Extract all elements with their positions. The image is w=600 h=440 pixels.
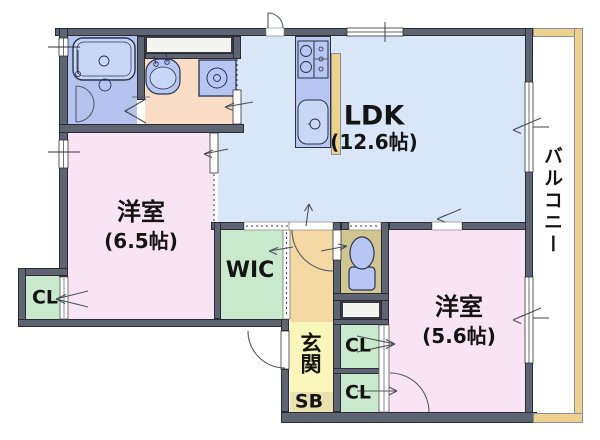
wall-wic-left	[214, 222, 221, 319]
kitchen-counter	[295, 36, 331, 148]
wall-bedroom2-top-a	[389, 222, 432, 230]
wall-washroom-bottom	[59, 124, 244, 133]
balcony-wall-right	[574, 28, 583, 423]
hall-door-opening	[289, 222, 333, 230]
storage-box-mid	[341, 301, 381, 319]
label-balcony: バルコニー	[542, 146, 561, 256]
wall-toilet-right	[381, 222, 389, 325]
wall-between-closets	[333, 368, 389, 374]
wic-sliding-door	[283, 230, 290, 319]
floor-plan: LDK (12.6帖) 洋室 (6.5帖) 洋室 (5.6帖) WIC CL C…	[0, 0, 600, 440]
wall-right	[525, 28, 533, 423]
label-bedroom-south: 洋室	[435, 295, 483, 319]
wall-storage-bottom	[145, 53, 241, 59]
label-closet-lower: CL	[345, 384, 371, 403]
wall-bottom-west	[18, 319, 289, 327]
entrance-door-leaf	[281, 331, 289, 369]
wall-top	[55, 28, 533, 36]
room-toilet	[341, 230, 381, 293]
window-interior	[432, 222, 462, 230]
kitchen-service-door-arc	[268, 13, 283, 28]
wall-below-storage	[333, 319, 389, 325]
wall-storage-right	[233, 36, 241, 59]
wall-below-toilet	[333, 293, 389, 301]
entrance-door-arc	[248, 331, 285, 368]
room-bedroom-west	[68, 133, 214, 319]
room-hallway	[290, 230, 333, 322]
wall-toilet-top	[341, 222, 349, 230]
wall-bath-partition	[137, 36, 145, 100]
label-ldk: LDK	[344, 103, 405, 130]
label-wic: WIC	[226, 260, 275, 282]
label-shoebox: SB	[295, 393, 323, 412]
wall-genkan-left-down	[281, 369, 289, 412]
label-bedroom-south-size: (5.6帖)	[422, 326, 496, 346]
wall-hall-right	[333, 222, 341, 412]
closet-west-track	[60, 277, 68, 319]
balcony-wall-bottom	[533, 413, 583, 423]
room-bathroom	[68, 36, 137, 124]
label-ldk-size: (12.6帖)	[330, 132, 418, 152]
wall-bottom-south	[281, 412, 537, 423]
label-bedroom-west: 洋室	[117, 200, 165, 224]
label-entrance: 玄関	[299, 332, 320, 374]
wall-bedroom2-top-b	[462, 222, 533, 230]
wall-left	[59, 28, 68, 277]
room-washroom	[145, 59, 237, 124]
label-closet-upper: CL	[345, 337, 371, 356]
storage-box-top	[145, 36, 233, 54]
label-bedroom-west-size: (6.5帖)	[104, 231, 178, 251]
label-closet-west: CL	[32, 289, 58, 308]
wall-genkan-left-up	[281, 319, 289, 331]
